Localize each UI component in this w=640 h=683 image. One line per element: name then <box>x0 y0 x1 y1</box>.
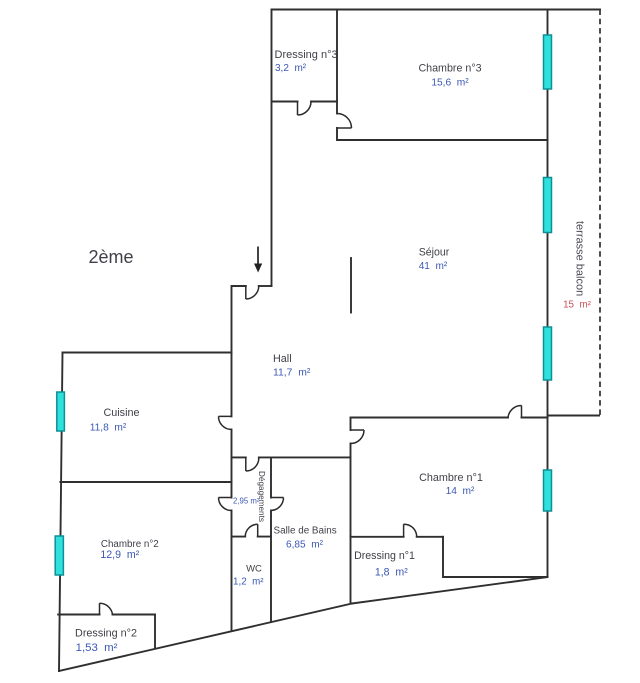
svg-text:1,53 m²: 1,53 m² <box>76 642 118 654</box>
svg-text:11,8 m²: 11,8 m² <box>90 422 127 433</box>
svg-text:15 m²: 15 m² <box>563 300 592 311</box>
svg-text:1,8 m²: 1,8 m² <box>375 567 408 579</box>
svg-text:Cuisine: Cuisine <box>103 407 139 419</box>
svg-text:Chambre n°3: Chambre n°3 <box>418 63 481 75</box>
svg-text:15,6 m²: 15,6 m² <box>431 78 469 89</box>
svg-text:3,2 m²: 3,2 m² <box>275 63 307 74</box>
svg-text:terrasse balcon: terrasse balcon <box>574 221 586 296</box>
svg-text:1,2 m²: 1,2 m² <box>233 577 264 588</box>
svg-text:11,7 m²: 11,7 m² <box>273 368 311 379</box>
svg-text:Hall: Hall <box>273 353 292 365</box>
svg-text:Dressing n°1: Dressing n°1 <box>354 550 415 562</box>
svg-text:12,9 m²: 12,9 m² <box>100 549 139 561</box>
svg-text:2,95 m²: 2,95 m² <box>233 497 260 506</box>
svg-text:Séjour: Séjour <box>419 247 450 259</box>
svg-text:2ème: 2ème <box>89 247 134 267</box>
svg-text:41 m²: 41 m² <box>419 261 448 272</box>
svg-text:6,85 m²: 6,85 m² <box>286 540 324 551</box>
svg-text:Dressing n°2: Dressing n°2 <box>75 628 137 640</box>
svg-text:WC: WC <box>246 564 262 575</box>
svg-text:Chambre n°1: Chambre n°1 <box>419 472 483 484</box>
svg-text:Salle de Bains: Salle de Bains <box>274 526 337 537</box>
svg-text:Dressing n°3: Dressing n°3 <box>275 49 338 61</box>
svg-text:14 m²: 14 m² <box>446 486 475 497</box>
